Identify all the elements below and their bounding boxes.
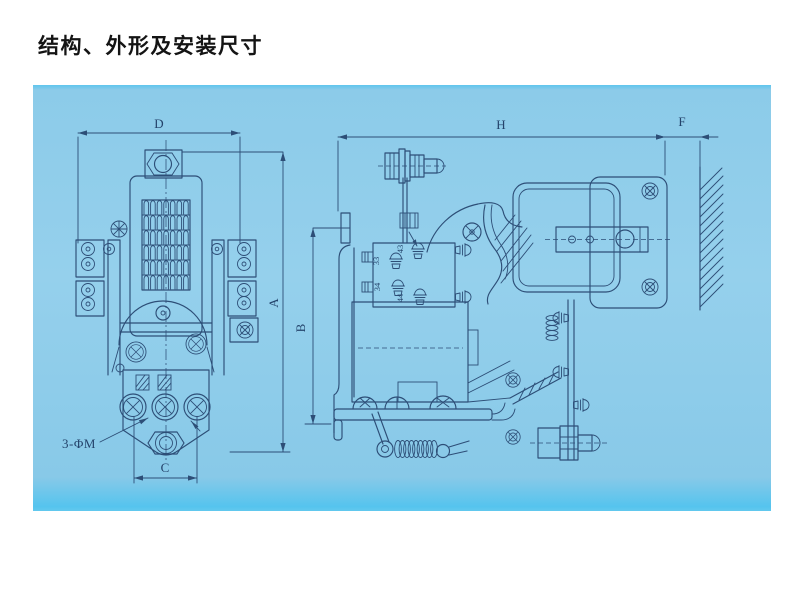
side-view: H F B (293, 114, 723, 460)
side-gap-dim-label: F (678, 114, 685, 129)
front-hole-note: 3-ΦM (62, 436, 96, 451)
side-width-dim-label: H (496, 117, 505, 132)
front-height-dim-label: A (266, 298, 281, 308)
drawing-panel: D A (33, 85, 771, 511)
terminal-label-44: 44 (395, 293, 405, 302)
page-title: 结构、外形及安装尺寸 (38, 30, 263, 60)
terminal-label-33: 33 (371, 257, 381, 266)
front-hole-span-dim-label: C (161, 460, 170, 475)
front-width-dim-label: D (154, 116, 163, 131)
terminal-label-43: 43 (395, 245, 405, 254)
front-view: D A (62, 116, 290, 483)
technical-drawing: D A (33, 85, 771, 511)
side-height-dim-label: B (293, 323, 308, 332)
slide: 结构、外形及安装尺寸 (0, 0, 800, 600)
terminal-label-34: 34 (372, 282, 382, 291)
